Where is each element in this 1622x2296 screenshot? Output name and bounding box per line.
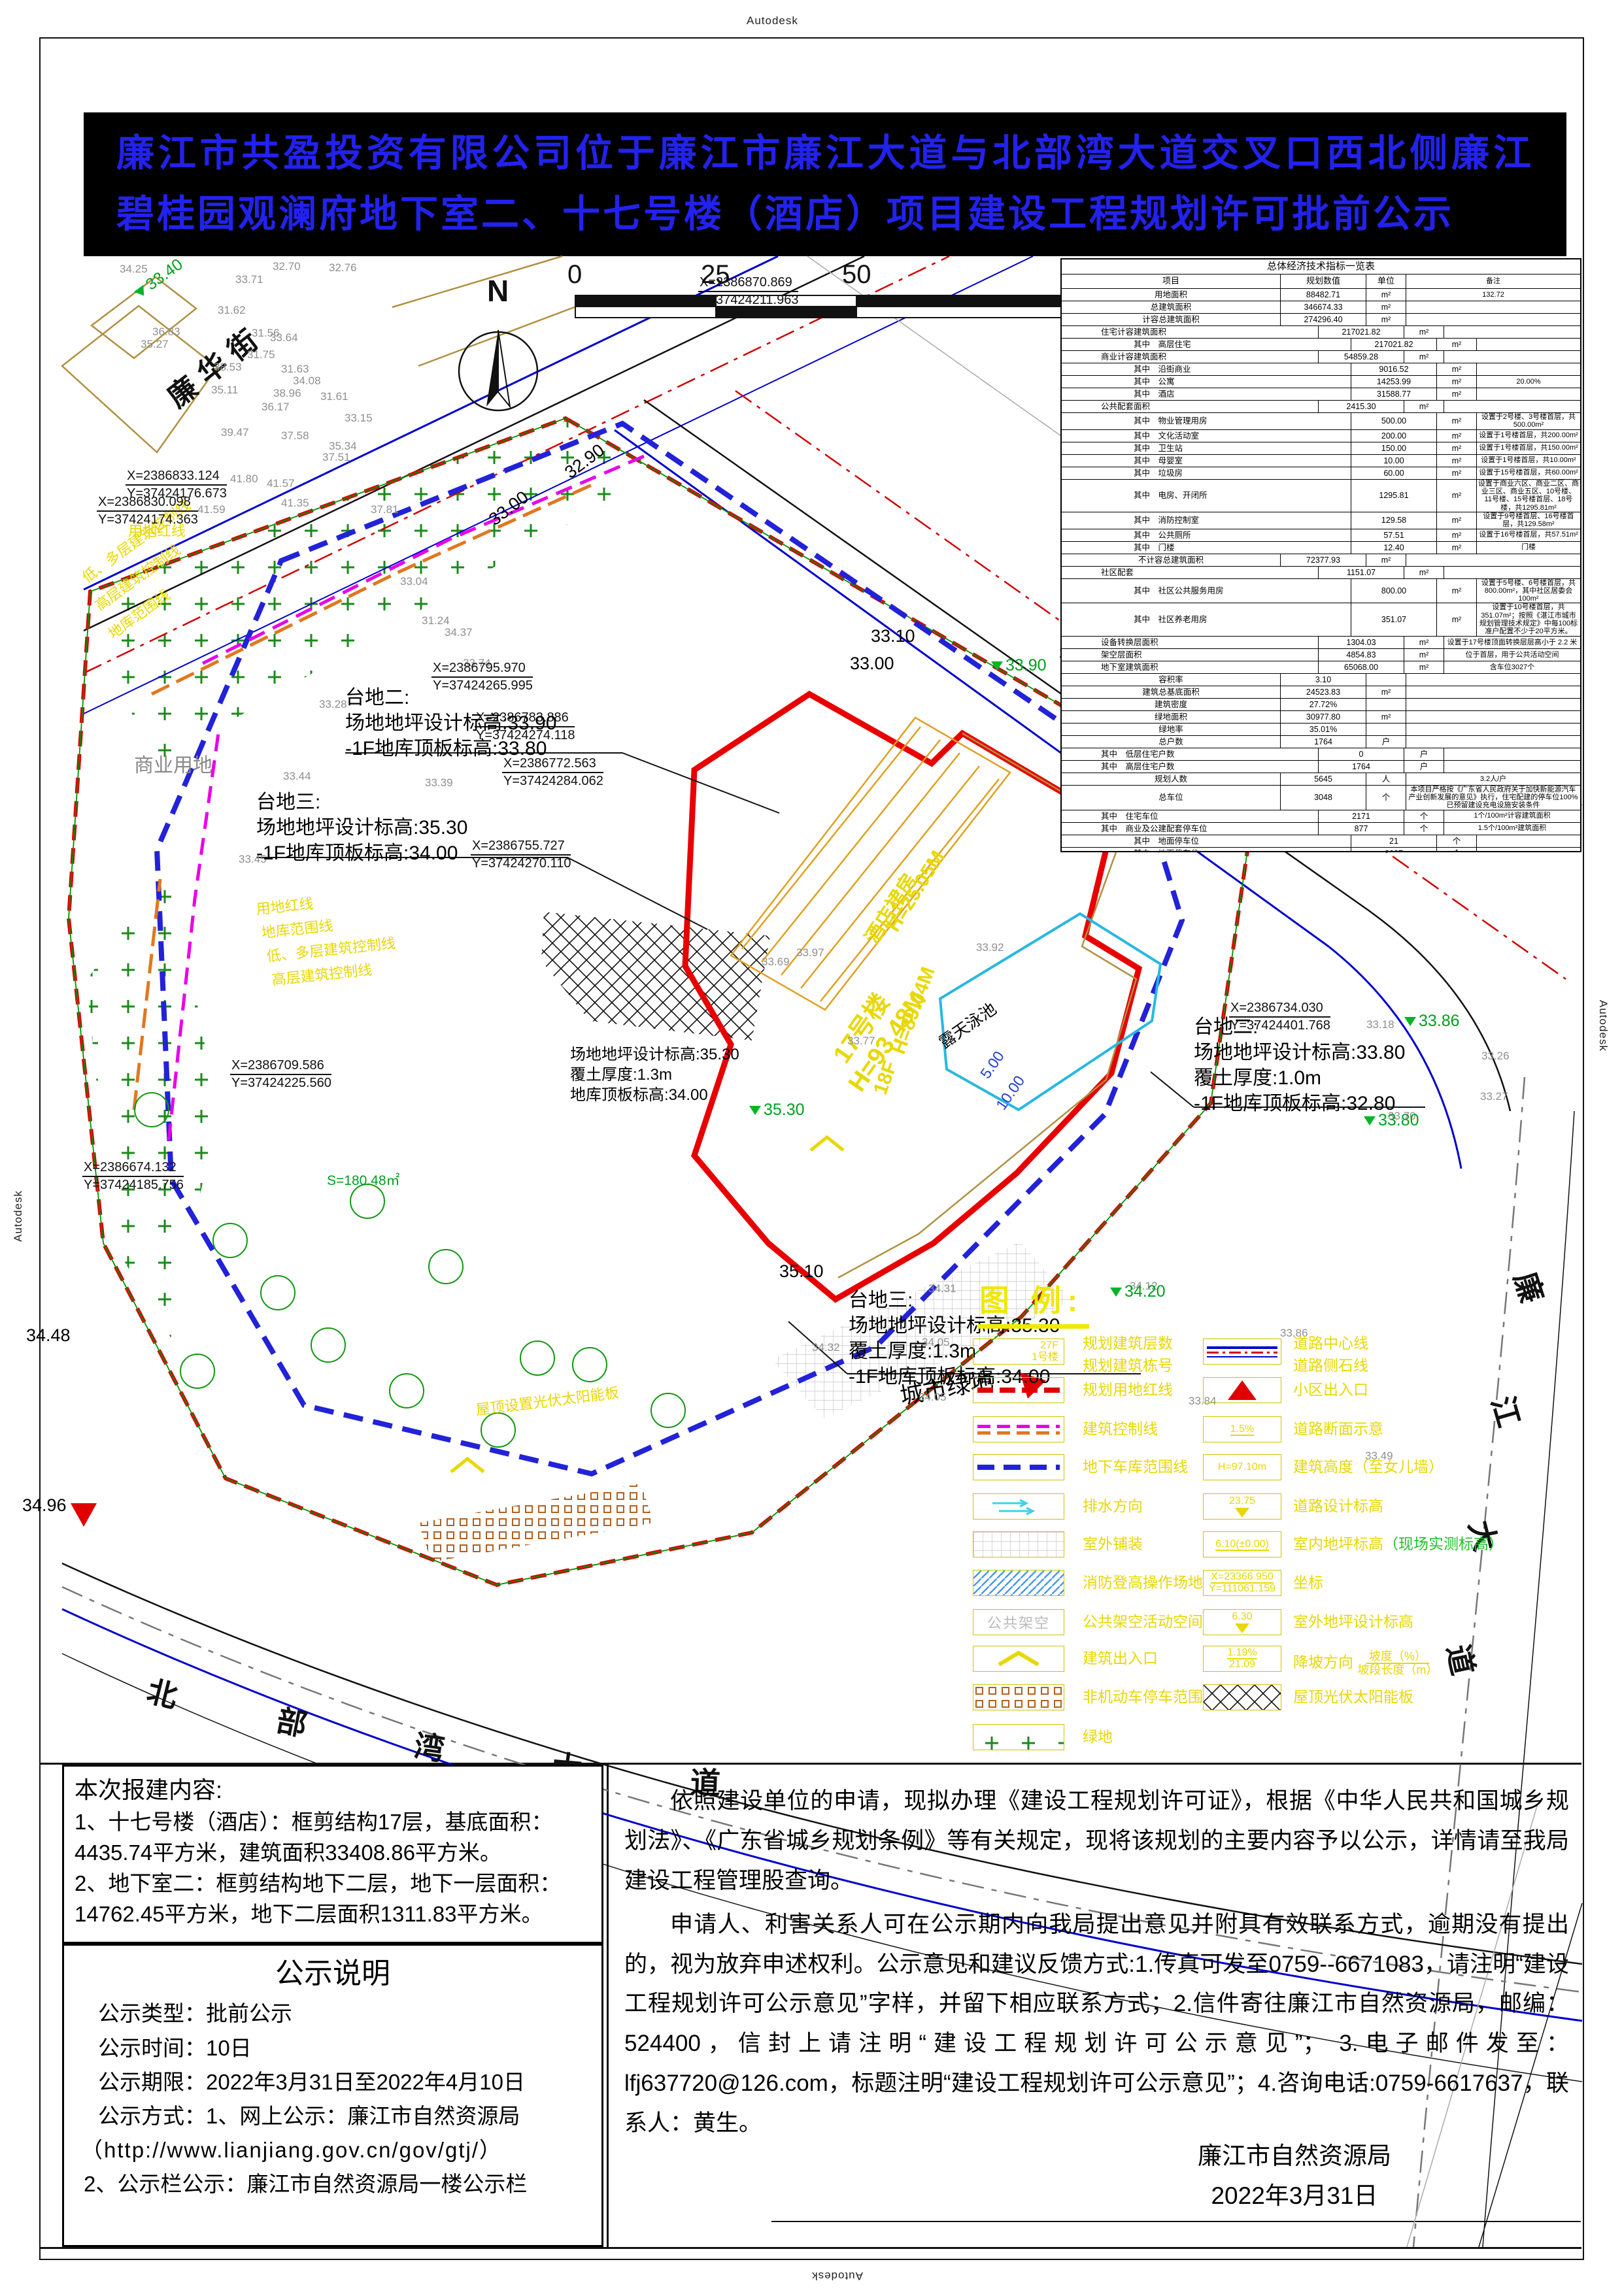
gate-triangle-icon	[1228, 1380, 1257, 1400]
row-label: 其中 社区养老用房	[1062, 603, 1351, 635]
row-note	[1444, 761, 1580, 773]
table-row: 用地面积 88482.71 m² 132.72	[1062, 289, 1580, 301]
row-unit: 人	[1366, 773, 1406, 785]
row-note	[1477, 835, 1580, 847]
lianhua-street-lines	[84, 256, 1033, 714]
tree-symbols	[135, 1093, 685, 1447]
legend-sym-section: 1.5%	[1203, 1416, 1281, 1442]
row-unit: m²	[1404, 401, 1444, 412]
legend-title: 图 例:	[978, 1277, 1089, 1329]
stilt-sample-text: 公共架空	[987, 1612, 1050, 1633]
row-value: 1295.81	[1351, 480, 1437, 512]
row-note: 3.2人/户	[1406, 773, 1580, 785]
row-value: 129.58	[1351, 512, 1437, 529]
hotel-floor-lines	[731, 718, 1010, 1010]
coord-x-sample: X=23366.950	[1211, 1571, 1274, 1584]
row-note: 1.5个/100m²建筑面积	[1444, 823, 1580, 835]
legend-label-stilt: 公共架空活动空间	[1083, 1613, 1203, 1631]
row-value: 1151.07	[1319, 567, 1404, 578]
row-value: 1304.03	[1319, 637, 1404, 648]
roadelev-triangle-icon	[1235, 1508, 1249, 1518]
height-sample: H=97.10m	[1218, 1461, 1266, 1473]
row-value: 2171	[1319, 810, 1404, 822]
row-unit: m²	[1437, 339, 1477, 350]
row-note	[1477, 848, 1580, 852]
row-label: 社区配套	[1062, 567, 1319, 578]
table-title: 总体经济技术指标一览表	[1062, 259, 1580, 275]
legend-sym-roadlines	[1203, 1339, 1281, 1365]
bike-parking-hatch	[418, 1484, 654, 1562]
row-unit	[1366, 724, 1406, 735]
legend-label-centerline: 道路中心线	[1293, 1335, 1368, 1353]
row-value: 217021.82	[1351, 339, 1437, 350]
row-note: 132.72	[1406, 289, 1580, 301]
row-unit: 户	[1404, 761, 1444, 773]
row-unit: m²	[1404, 326, 1444, 338]
row-value: 9016.52	[1351, 363, 1437, 375]
row-unit: m²	[1366, 301, 1406, 313]
row-label: 其中 酒店	[1062, 388, 1351, 400]
row-value: 274296.40	[1281, 314, 1366, 325]
legend-label-height: 建筑高度（至女儿墙）	[1293, 1458, 1444, 1476]
row-unit: m²	[1437, 579, 1477, 603]
legend-label-roadelev: 道路设计标高	[1293, 1497, 1383, 1516]
table-row: 其中 住宅车位 2171 个 1个/100m²计容建筑面积	[1062, 810, 1580, 823]
table-row: 其中 消防控制室 129.58 m² 设置于9号楼首层、16号楼首层，共129.…	[1062, 512, 1580, 529]
row-note	[1477, 363, 1580, 375]
legend-sym-slope: 1.19% 21.09	[1203, 1646, 1281, 1672]
row-label: 地下室建筑面积	[1062, 661, 1319, 673]
row-unit: m²	[1437, 430, 1477, 442]
table-row: 其中 地面停车位 21 个	[1062, 835, 1580, 848]
row-unit: 个	[1366, 786, 1406, 810]
row-label: 其中 电房、开闭所	[1062, 480, 1351, 512]
legend-label-outelev: 室外地坪设计标高	[1293, 1613, 1413, 1631]
legend-label-controlline: 建筑控制线	[1083, 1420, 1158, 1439]
table-row: 其中 电房、开闭所 1295.81 m² 设置于商业六区、商业二区、商业三区、商…	[1062, 480, 1580, 512]
row-value: 3.10	[1281, 674, 1366, 686]
table-row: 其中 地下停车位 3027 个	[1062, 848, 1580, 852]
legend-label-entry: 建筑出入口	[1083, 1650, 1158, 1668]
row-unit: m²	[1437, 376, 1477, 388]
row-note: 20.00%	[1477, 376, 1580, 388]
row-value: 3048	[1281, 786, 1366, 810]
table-row: 架空层面积 4854.83 m² 位于首层，用于公共活动空间	[1062, 649, 1580, 661]
row-unit: m²	[1437, 512, 1477, 529]
row-label: 绿地面积	[1062, 711, 1281, 723]
row-note: 设置于17号楼顶面转换层层高小于 2.2 米	[1444, 637, 1580, 648]
row-value: 21	[1351, 835, 1437, 847]
row-note	[1406, 686, 1580, 698]
row-note: 设置于商业六区、商业二区、商业三区、商业五区、10号楼、11号楼、15号楼首层、…	[1477, 480, 1580, 512]
row-unit: m²	[1437, 603, 1477, 635]
row-note: 设置于2号楼、3号楼首层，共500.00m²	[1477, 413, 1580, 429]
row-note	[1406, 699, 1580, 710]
legend-label-solar: 屋顶光伏太阳能板	[1293, 1688, 1413, 1706]
table-row: 其中 门楼 12.40 m² 门楼	[1062, 542, 1580, 554]
row-value: 35.01%	[1281, 724, 1366, 735]
row-unit: 个	[1437, 848, 1477, 852]
row-label: 住宅计容建筑面积	[1062, 326, 1319, 338]
row-label: 总建筑面积	[1062, 301, 1281, 313]
legend-sym-bike	[973, 1684, 1064, 1710]
row-note	[1444, 351, 1580, 363]
table-row: 其中 高层住宅户数 1764 户	[1062, 761, 1580, 773]
legend-label-firelane: 消防登高操作场地	[1083, 1574, 1203, 1592]
row-value: 800.00	[1351, 579, 1437, 603]
entrance-chevron-icon	[992, 1649, 1045, 1669]
economic-ind-table: 总体经济技术指标一览表 项目 规划数值 单位 备注 用地面积 88482.71 …	[1060, 258, 1581, 852]
slope-label: 降坡方向	[1293, 1654, 1353, 1671]
row-label: 规划人数	[1062, 773, 1281, 785]
legend-label-garageline: 地下车库范围线	[1083, 1458, 1188, 1476]
signature-block: 廉江市自然资源局 2022年3月31日	[1020, 2136, 1569, 2216]
legend-label-blockno: 规划建筑栋号	[1083, 1357, 1173, 1375]
row-label: 其中 物业管理用房	[1062, 413, 1351, 429]
outelev-triangle-icon	[1235, 1623, 1249, 1633]
row-note	[1477, 388, 1580, 400]
row-value: 3027	[1351, 848, 1437, 852]
legend-sym-garageline	[973, 1454, 1064, 1480]
slope-sample: 1.5%	[1230, 1423, 1254, 1436]
row-label: 容积率	[1062, 674, 1281, 686]
floorelev-label-extra: （现场实测标高）	[1383, 1535, 1504, 1552]
row-note	[1406, 674, 1580, 686]
row-note: 设置于10号楼首层，共351.07m²；按照《湛江市城市规划管理技术规定》中每1…	[1477, 603, 1580, 635]
row-note: 本项目严格按《广东省人民政府关于加快新能源汽车产业创新发展的意见》执行，住宅配建…	[1406, 786, 1580, 810]
table-row: 其中 低层住宅户数 0 户	[1062, 748, 1580, 761]
row-unit: m²	[1404, 637, 1444, 648]
scale-tick-25: 25	[701, 260, 730, 290]
row-value: 31588.77	[1351, 388, 1437, 400]
scale-bar	[575, 295, 1138, 318]
legend-sym-firelane	[973, 1570, 1064, 1596]
row-unit: m²	[1437, 467, 1477, 479]
legend: 图 例: 27F 1号楼 规划建筑层数 规划建筑栋号 规划用地红线 建筑控制线 …	[973, 1274, 1569, 1804]
legend-label-floors: 规划建筑层数	[1083, 1335, 1173, 1353]
report-content-panel: 本次报建内容: 1、十七号楼（酒店）：框剪结构17层，基底面积：4435.74平…	[62, 1765, 603, 1944]
row-unit: m²	[1437, 363, 1477, 375]
row-label: 建筑密度	[1062, 699, 1281, 710]
row-value: 30977.80	[1281, 711, 1366, 723]
legend-label-bike: 非机动车停车范围	[1083, 1688, 1203, 1706]
legend-label-drain: 排水方向	[1083, 1497, 1143, 1516]
report-line-2: 2、地下室二：框剪结构地下二层，地下一层面积：14762.45平方米，地下二层面…	[75, 1869, 591, 1930]
row-label: 其中 沿街商业	[1062, 363, 1351, 375]
row-value: 4854.83	[1319, 649, 1404, 661]
table-row: 公共配套面积 2415.30 m²	[1062, 401, 1580, 413]
district-entrance-icon	[71, 1503, 97, 1527]
roadelev-sample: 23.75	[1229, 1495, 1255, 1507]
row-note	[1406, 301, 1580, 313]
row-label: 其中 地下停车位	[1062, 848, 1351, 852]
row-label: 其中 地面停车位	[1062, 835, 1351, 847]
green-area-hatch	[98, 420, 657, 770]
row-note	[1444, 748, 1580, 760]
row-label: 其中 消防控制室	[1062, 512, 1351, 529]
table-row: 绿地面积 30977.80 m²	[1062, 711, 1580, 724]
row-label: 其中 卫生站	[1062, 442, 1351, 454]
col-item: 项目	[1062, 275, 1281, 288]
notice-title: 公示说明	[75, 1951, 591, 1997]
row-label: 用地面积	[1062, 289, 1281, 301]
signature-agency: 廉江市自然资源局	[1020, 2136, 1569, 2176]
row-note: 设置于16号楼首层，共57.51m²	[1477, 529, 1580, 541]
legend-sym-roadelev: 23.75	[1203, 1493, 1281, 1520]
row-label: 其中 高层住宅户数	[1062, 761, 1319, 773]
row-value: 60.00	[1351, 467, 1437, 479]
row-label: 其中 住宅车位	[1062, 810, 1319, 822]
north-label: N	[487, 273, 509, 308]
row-label: 其中 公寓	[1062, 376, 1351, 388]
building-entrance-icon	[811, 1137, 843, 1150]
table-row: 地下室建筑面积 65068.00 m² 含车位3027个	[1062, 661, 1580, 674]
building-entrance-icon-2	[451, 1459, 484, 1472]
row-unit: 户	[1404, 748, 1444, 760]
signature-date: 2022年3月31日	[1020, 2176, 1569, 2216]
notice-type: 公示类型：批前公示	[75, 1997, 591, 2031]
row-note	[1444, 326, 1580, 338]
row-unit: m²	[1437, 413, 1477, 429]
row-label: 总户数	[1062, 736, 1281, 748]
legend-label-curbline: 道路侧石线	[1293, 1357, 1368, 1375]
scale-tick-0: 0	[567, 260, 582, 290]
row-unit: m²	[1366, 711, 1406, 723]
row-note: 位于首层，用于公共活动空间	[1444, 649, 1580, 661]
table-row: 其中 酒店 31588.77 m²	[1062, 388, 1580, 401]
plan-notice-sheet: Autodesk Autodesk Autodesk Autodesk	[0, 0, 1622, 2296]
legend-sym-paving	[973, 1531, 1064, 1557]
row-note: 设置于1号楼首层，共150.00m²	[1477, 442, 1580, 454]
row-label: 其中 文化活动室	[1062, 430, 1351, 442]
table-row: 其中 社区公共服务用房 800.00 m² 设置于5号楼、6号楼首层，共800.…	[1062, 579, 1580, 604]
table-row: 其中 高层住宅 217021.82 m²	[1062, 339, 1580, 351]
row-value: 5645	[1281, 773, 1366, 785]
scale-tick-50: 50	[842, 260, 871, 290]
table-row: 其中 商业及公建配套停车位 877 个 1.5个/100m²建筑面积	[1062, 823, 1580, 835]
row-label: 其中 高层住宅	[1062, 339, 1351, 350]
row-note: 含车位3027个	[1444, 661, 1580, 673]
table-row: 其中 物业管理用房 500.00 m² 设置于2号楼、3号楼首层，共500.00…	[1062, 413, 1580, 430]
row-value: 346674.33	[1281, 301, 1366, 313]
row-value: 200.00	[1351, 430, 1437, 442]
notice-method: 公示方式：1、网上公示：廉江市自然资源局	[75, 2099, 591, 2133]
floorelev-label: 室内地坪标高	[1293, 1535, 1383, 1552]
notice-info-panel: 公示说明 公示类型：批前公示 公示时间：10日 公示期限：2022年3月31日至…	[62, 1944, 603, 2247]
row-value: 10.00	[1351, 455, 1437, 467]
row-label: 其中 垃圾房	[1062, 467, 1351, 479]
table-row: 社区配套 1151.07 m²	[1062, 567, 1580, 579]
legend-sym-stilt: 公共架空	[973, 1609, 1064, 1635]
legend-sym-entry	[973, 1646, 1064, 1672]
notice-period: 公示期限：2022年3月31日至2022年4月10日	[75, 2065, 591, 2099]
row-value: 877	[1319, 823, 1404, 835]
legend-sym-solar	[1203, 1684, 1281, 1710]
north-arrow-icon	[459, 330, 537, 410]
table-row: 其中 母婴室 10.00 m² 设置于1号楼首层，共10.00m²	[1062, 455, 1580, 467]
legend-label-redline: 规划用地红线	[1083, 1381, 1173, 1399]
row-unit	[1366, 699, 1406, 710]
row-unit: m²	[1437, 529, 1477, 541]
legend-sym-building-number: 27F 1号楼	[973, 1339, 1064, 1365]
drain-arrows-icon	[979, 1497, 1058, 1516]
row-unit: 个	[1404, 823, 1444, 835]
legend-label-paving: 室外铺装	[1083, 1535, 1143, 1554]
row-unit: m²	[1404, 661, 1444, 673]
row-label: 建筑总基底面积	[1062, 686, 1281, 698]
row-label: 其中 社区公共服务用房	[1062, 579, 1351, 603]
row-unit: m²	[1437, 455, 1477, 467]
row-unit: m²	[1437, 480, 1477, 512]
row-label: 公共配套面积	[1062, 401, 1319, 412]
row-note	[1477, 339, 1580, 350]
row-unit: 户	[1366, 736, 1406, 748]
row-label: 不计容总建筑面积	[1062, 554, 1281, 566]
row-unit: m²	[1404, 351, 1444, 363]
row-value: 0	[1319, 748, 1404, 760]
row-label: 其中 低层住宅户数	[1062, 748, 1319, 760]
legend-sym-floorelev: 6.10(±0.00)	[1203, 1531, 1281, 1557]
table-row: 其中 公寓 14253.99 m² 20.00%	[1062, 376, 1580, 388]
row-value: 88482.71	[1281, 289, 1366, 301]
row-note	[1406, 554, 1580, 566]
slope-frac-den: 坡段长度（m）	[1357, 1663, 1438, 1676]
table-row: 容积率 3.10	[1062, 674, 1580, 686]
row-unit: m²	[1366, 686, 1406, 698]
notice-board: 2、公示栏公示：廉江市自然资源局一楼公示栏	[75, 2167, 591, 2201]
row-label: 其中 商业及公建配套停车位	[1062, 823, 1319, 835]
table-row: 其中 公共厕所 57.51 m² 设置于16号楼首层，共57.51m²	[1062, 529, 1580, 542]
row-value: 72377.93	[1281, 554, 1366, 566]
legend-label-gate: 小区出入口	[1293, 1381, 1368, 1399]
row-note: 设置于1号楼首层，共10.00m²	[1477, 455, 1580, 467]
floorelev-sample: 6.10(±0.00)	[1215, 1539, 1269, 1551]
row-label: 计容总建筑面积	[1062, 314, 1281, 325]
row-note: 门楼	[1477, 542, 1580, 554]
row-label: 设备转换层面积	[1062, 637, 1319, 648]
block-sample: 1号楼	[1032, 1352, 1058, 1363]
row-note	[1406, 711, 1580, 723]
row-label: 其中 门楼	[1062, 542, 1351, 554]
row-label: 架空层面积	[1062, 649, 1319, 661]
row-note: 设置于9号楼首层、16号楼首层，共129.58m²	[1477, 512, 1580, 529]
coord-y-sample: Y=111061.159	[1209, 1583, 1276, 1595]
row-value: 2415.30	[1319, 401, 1404, 412]
col-unit: 单位	[1366, 275, 1406, 288]
row-unit: m²	[1404, 567, 1444, 578]
row-note	[1406, 314, 1580, 325]
legend-label-slope: 降坡方向 坡度（%）坡段长度（m）	[1293, 1650, 1438, 1676]
table-row: 其中 卫生站 150.00 m² 设置于1号楼首层，共150.00m²	[1062, 442, 1580, 455]
report-title: 本次报建内容:	[75, 1773, 591, 1807]
legend-label-coord: 坐标	[1293, 1574, 1323, 1592]
table-row: 其中 垃圾房 60.00 m² 设置于15号楼首层，共60.00m²	[1062, 467, 1580, 480]
slope-frac-num: 坡度（%）	[1366, 1650, 1429, 1664]
row-unit: 个	[1437, 835, 1477, 847]
row-note: 设置于5号楼、6号楼首层，共800.00m²，其中社区居委会100m²	[1477, 579, 1580, 603]
solar-roof-hatch	[541, 912, 770, 1040]
slope-len-sample: 21.09	[1229, 1659, 1255, 1671]
row-note	[1444, 567, 1580, 578]
outelev-sample: 6.30	[1232, 1611, 1252, 1623]
row-note	[1406, 724, 1580, 735]
row-unit: m²	[1437, 388, 1477, 400]
row-value: 150.00	[1351, 442, 1437, 454]
row-value: 351.07	[1351, 603, 1437, 635]
notice-url: （http://www.lianjiang.gov.cn/gov/gtj/）	[75, 2133, 591, 2167]
notice-paragraph-1: 依照建设单位的申请，现拟办理《建设工程规划许可证》，根据《中华人民共和国城乡规划…	[624, 1782, 1569, 1901]
row-note: 1个/100m²计容建筑面积	[1444, 810, 1580, 822]
col-note: 备注	[1406, 275, 1580, 288]
slope-pct-sample: 1.19%	[1227, 1647, 1257, 1659]
row-unit: m²	[1437, 442, 1477, 454]
table-row: 设备转换层面积 1304.03 m² 设置于17号楼顶面转换层层高小于 2.2 …	[1062, 637, 1580, 649]
row-unit: 个	[1404, 810, 1444, 822]
row-note: 设置于15号楼首层，共60.00m²	[1477, 467, 1580, 479]
row-value: 65068.00	[1319, 661, 1404, 673]
legend-label-floorelev: 室内地坪标高（现场实测标高）	[1293, 1535, 1504, 1554]
row-note: 设置于1号楼首层，共200.00m²	[1477, 430, 1580, 442]
legend-sym-redline	[973, 1377, 1064, 1403]
table-row: 建筑总基底面积 24523.83 m²	[1062, 686, 1580, 699]
row-value: 54859.28	[1319, 351, 1404, 363]
legend-sym-outelev: 6.30	[1203, 1609, 1281, 1635]
table-row: 不计容总建筑面积 72377.93 m²	[1062, 554, 1580, 567]
legend-sym-coord: X=23366.950 Y=111061.159	[1203, 1570, 1281, 1596]
row-unit: m²	[1366, 314, 1406, 325]
col-value: 规划数值	[1281, 275, 1366, 288]
row-note	[1444, 401, 1580, 412]
table-row: 其中 社区养老用房 351.07 m² 设置于10号楼首层，共351.07m²；…	[1062, 603, 1580, 636]
legend-label-section: 道路断面示意	[1293, 1420, 1383, 1439]
row-value: 27.72%	[1281, 699, 1366, 710]
row-unit	[1366, 674, 1406, 686]
green-area-hatch-2	[86, 864, 217, 1339]
table-row: 规划人数 5645 人 3.2人/户	[1062, 773, 1580, 786]
row-value: 1764	[1281, 736, 1366, 748]
row-value: 12.40	[1351, 542, 1437, 554]
table-row: 总建筑面积 346674.33 m²	[1062, 301, 1580, 314]
notice-paragraph-2: 申请人、利害关系人可在公示期内向我局提出意见并附具有效联系方式，逾期没有提出的，…	[624, 1905, 1569, 2144]
legend-sym-height: H=97.10m	[1203, 1454, 1281, 1480]
row-note	[1406, 736, 1580, 748]
row-unit: m²	[1366, 289, 1406, 301]
row-label: 其中 母婴室	[1062, 455, 1351, 467]
table-row: 其中 文化活动室 200.00 m² 设置于1号楼首层，共200.00m²	[1062, 430, 1580, 442]
table-row: 建筑密度 27.72%	[1062, 699, 1580, 711]
legend-label-green: 绿地	[1083, 1728, 1113, 1746]
table-row: 商业计容建筑面积 54859.28 m²	[1062, 351, 1580, 363]
row-unit: m²	[1437, 542, 1477, 554]
row-value: 24523.83	[1281, 686, 1366, 698]
table-row: 总车位 3048 个 本项目严格按《广东省人民政府关于加快新能源汽车产业创新发展…	[1062, 786, 1580, 810]
row-value: 500.00	[1351, 413, 1437, 429]
row-value: 217021.82	[1319, 326, 1404, 338]
table-row: 其中 沿街商业 9016.52 m²	[1062, 363, 1580, 376]
notice-body: 依照建设单位的申请，现拟办理《建设工程规划许可证》，根据《中华人民共和国城乡规划…	[624, 1782, 1569, 2148]
row-value: 1764	[1319, 761, 1404, 773]
legend-sym-controlline	[973, 1416, 1064, 1442]
table-header: 项目 规划数值 单位 备注	[1062, 275, 1580, 289]
row-value: 14253.99	[1351, 376, 1437, 388]
legend-sym-gate	[1203, 1377, 1281, 1403]
floors-sample: 27F	[1040, 1340, 1058, 1352]
row-label: 绿地率	[1062, 724, 1281, 735]
report-line-1: 1、十七号楼（酒店）：框剪结构17层，基底面积：4435.74平方米，建筑面积3…	[75, 1807, 591, 1869]
legend-sym-drain	[973, 1493, 1064, 1520]
existing-buildings	[62, 256, 592, 452]
table-row: 绿地率 35.01%	[1062, 724, 1580, 736]
